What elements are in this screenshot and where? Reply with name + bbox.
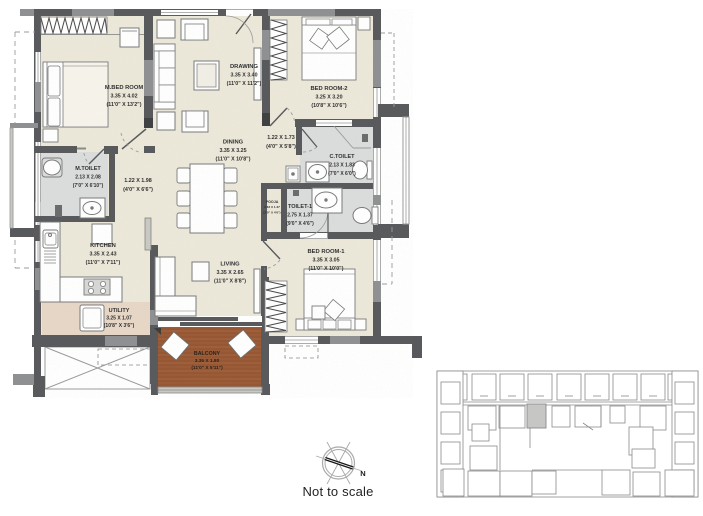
- svg-text:Not to scale: Not to scale: [302, 484, 373, 499]
- svg-text:N: N: [360, 469, 365, 478]
